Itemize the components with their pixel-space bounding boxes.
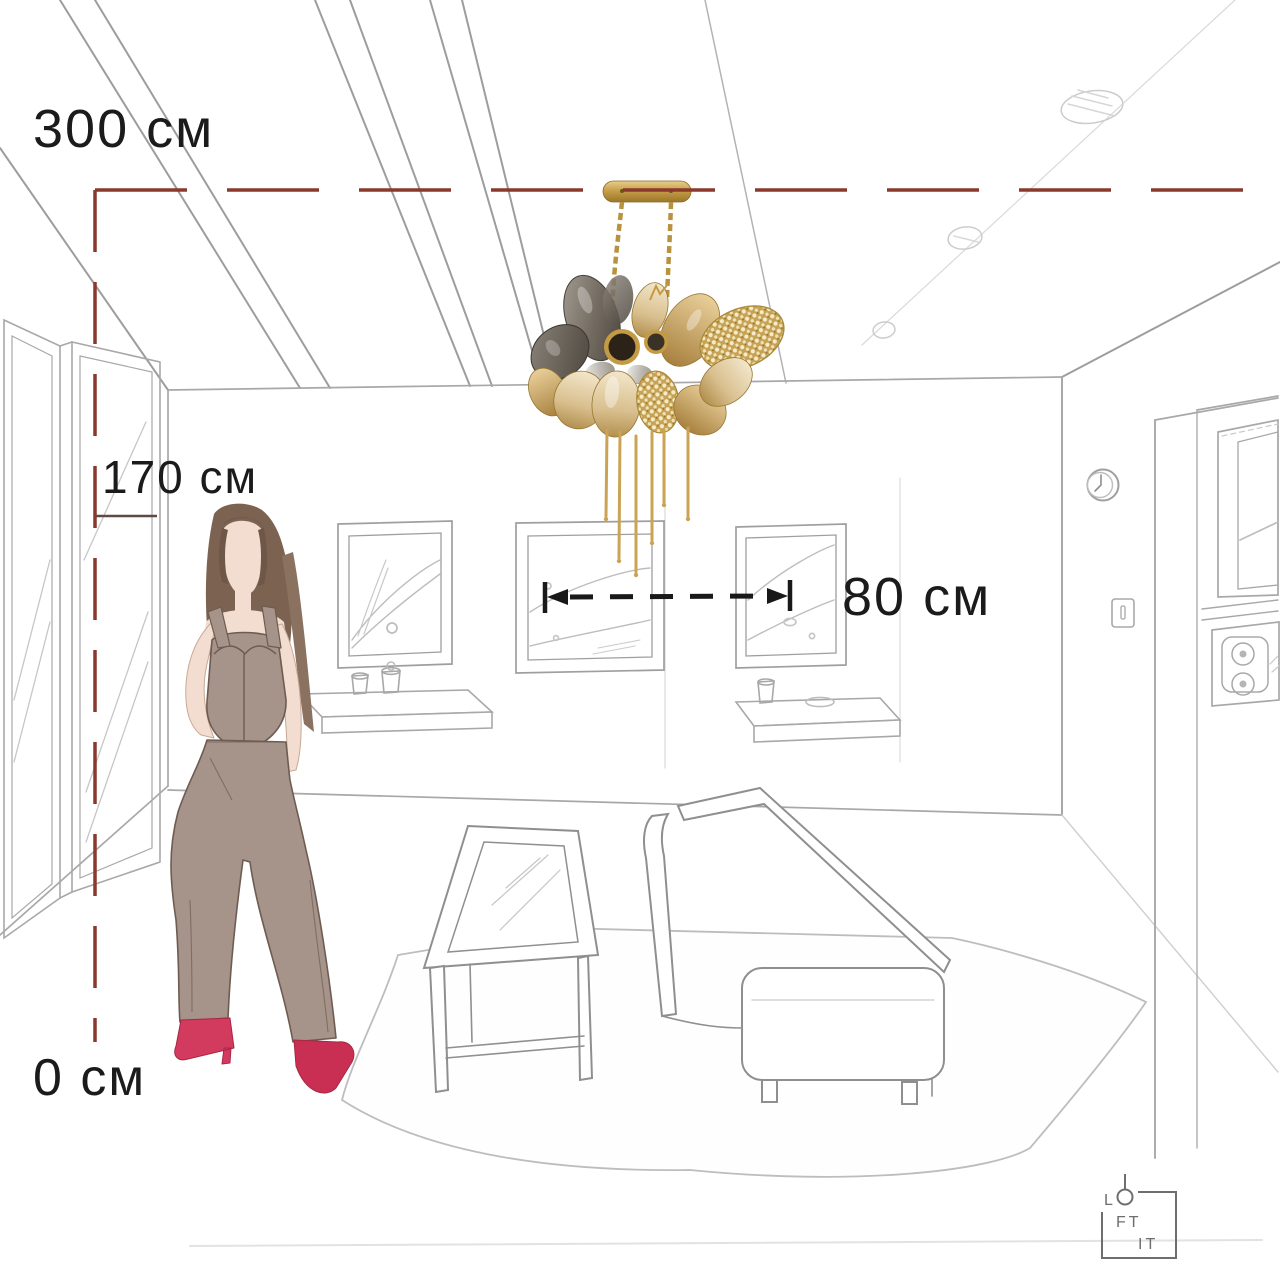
chandelier [520, 181, 794, 577]
figure-shoe-left [175, 1018, 234, 1064]
fixture-width-label: 80 см [842, 568, 991, 627]
logo-letter-l: L [1104, 1192, 1115, 1209]
figure-shoe-right [294, 1040, 354, 1093]
ceiling-height-label: 300 см [33, 100, 214, 159]
sketched-ceiling-spot-icons [862, 0, 1235, 345]
pendant-lamp-circle-icon [1118, 1190, 1133, 1205]
right-doorway [1155, 396, 1279, 1158]
logo-letters-ft: FT [1116, 1214, 1142, 1231]
logo-letters-it: IT [1138, 1236, 1158, 1253]
product-dimension-diagram: L FT IT 300 см 170 см 0 см 80 см [0, 0, 1280, 1280]
light-switch-icon [1112, 599, 1134, 627]
fixture-width-dimension [545, 580, 790, 613]
floor-level-label: 0 см [33, 1050, 146, 1107]
picture-frame-1 [338, 521, 452, 668]
left-windows [4, 320, 160, 938]
brand-logo: L FT IT [1102, 1174, 1176, 1258]
wall-shelf-right [736, 679, 900, 742]
chandelier-glass-cluster [520, 268, 794, 445]
wall-shelf-left [300, 662, 492, 733]
wall-clock-icon [1088, 470, 1119, 501]
room-sketch-scene: L FT IT [0, 0, 1280, 1280]
chandelier-hanging-rods [604, 428, 690, 577]
person-height-label: 170 см [102, 452, 258, 503]
scale-figure-woman [171, 504, 354, 1093]
